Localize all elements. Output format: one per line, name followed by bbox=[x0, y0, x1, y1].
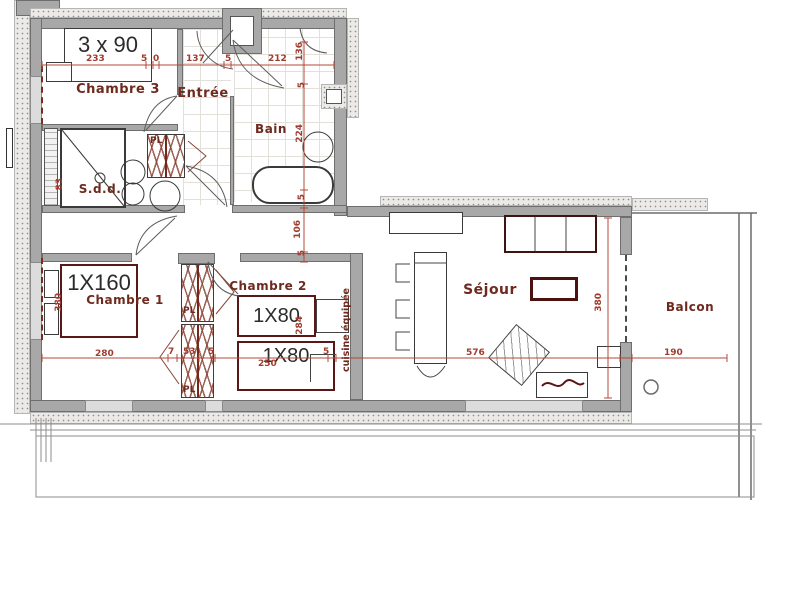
chair-left-1 bbox=[396, 264, 410, 282]
chair-left-3 bbox=[396, 332, 410, 350]
tv-squiggle bbox=[542, 380, 584, 386]
dim-entree-width: 137 bbox=[186, 55, 205, 64]
terrace-outline bbox=[36, 436, 754, 497]
dim-bain-width: 212 bbox=[268, 55, 287, 64]
dim-bain-seg-a: 5 bbox=[298, 82, 307, 88]
floor-plan: 3 x 90 1X160 1X80 1X80 bbox=[0, 0, 800, 600]
closet-label-entree: PL bbox=[150, 137, 162, 146]
washbasin-bain bbox=[303, 132, 333, 162]
dim-c1-height: 380 bbox=[55, 293, 64, 312]
chair-bottom bbox=[417, 366, 445, 377]
dim-seg-b: 0 bbox=[153, 55, 159, 64]
dim-corridor-seg: 5 bbox=[298, 250, 307, 256]
dim-sejour-width: 576 bbox=[466, 349, 485, 358]
dim-bain-recess: 136 bbox=[296, 42, 305, 61]
dim-c2-seg: 5 bbox=[323, 348, 329, 357]
room-label-chambre1: Chambre 1 bbox=[80, 293, 170, 307]
dim-seg-c: 5 bbox=[225, 55, 231, 64]
room-label-bain: Bain bbox=[248, 122, 294, 136]
room-label-sdd: S.d.d. bbox=[70, 182, 130, 196]
dim-balcon-width: 190 bbox=[664, 349, 683, 358]
dim-c3-width: 233 bbox=[86, 55, 105, 64]
room-label-cuisine: cuisine équipée bbox=[341, 288, 352, 372]
washbasin-entree bbox=[150, 181, 180, 211]
room-label-entree: Entrée bbox=[168, 86, 238, 101]
dim-c1-width: 280 bbox=[95, 350, 114, 359]
chair-left-2 bbox=[396, 300, 410, 318]
dim-c2-depth: 284 bbox=[296, 316, 305, 335]
dim-shower: 83 bbox=[56, 178, 65, 191]
room-label-balcon: Balcon bbox=[660, 300, 720, 314]
dim-closet-b: 53 bbox=[183, 348, 196, 357]
balcony-drain-icon bbox=[644, 380, 658, 394]
dim-bain-seg-b: 5 bbox=[298, 194, 307, 200]
closet-label-chambre2: PL bbox=[183, 307, 195, 316]
dim-sejour-depth: 380 bbox=[595, 293, 604, 312]
closet-label-chambre1: PL bbox=[183, 386, 195, 395]
closet-chevron-chambre1 bbox=[160, 330, 179, 384]
dim-seg-a: 5 bbox=[141, 55, 147, 64]
room-label-sejour: Séjour bbox=[458, 282, 522, 298]
room-label-chambre3: Chambre 3 bbox=[72, 82, 164, 97]
dim-closet-c: 5 bbox=[208, 348, 214, 357]
washbasin-sdd-a bbox=[121, 160, 145, 184]
dim-corridor: 106 bbox=[294, 220, 303, 239]
room-label-chambre2: Chambre 2 bbox=[228, 279, 308, 293]
dim-closet-a: 7 bbox=[168, 348, 174, 357]
dim-c2-width: 250 bbox=[258, 360, 277, 369]
dim-bain-depth: 224 bbox=[296, 124, 305, 143]
